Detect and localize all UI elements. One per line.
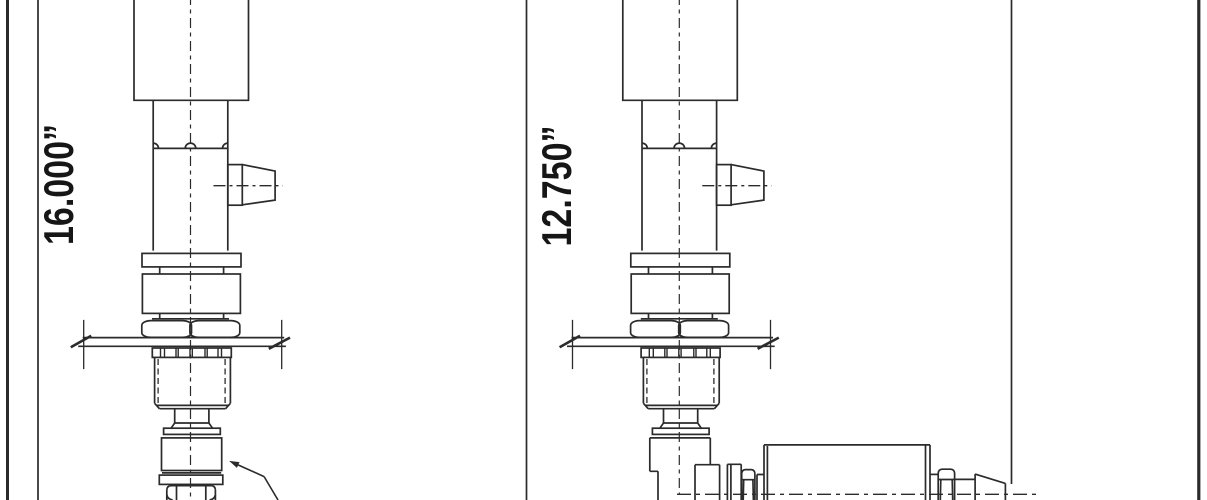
- svg-text:12.750”: 12.750”: [533, 126, 580, 247]
- svg-text:16.000”: 16.000”: [35, 124, 82, 245]
